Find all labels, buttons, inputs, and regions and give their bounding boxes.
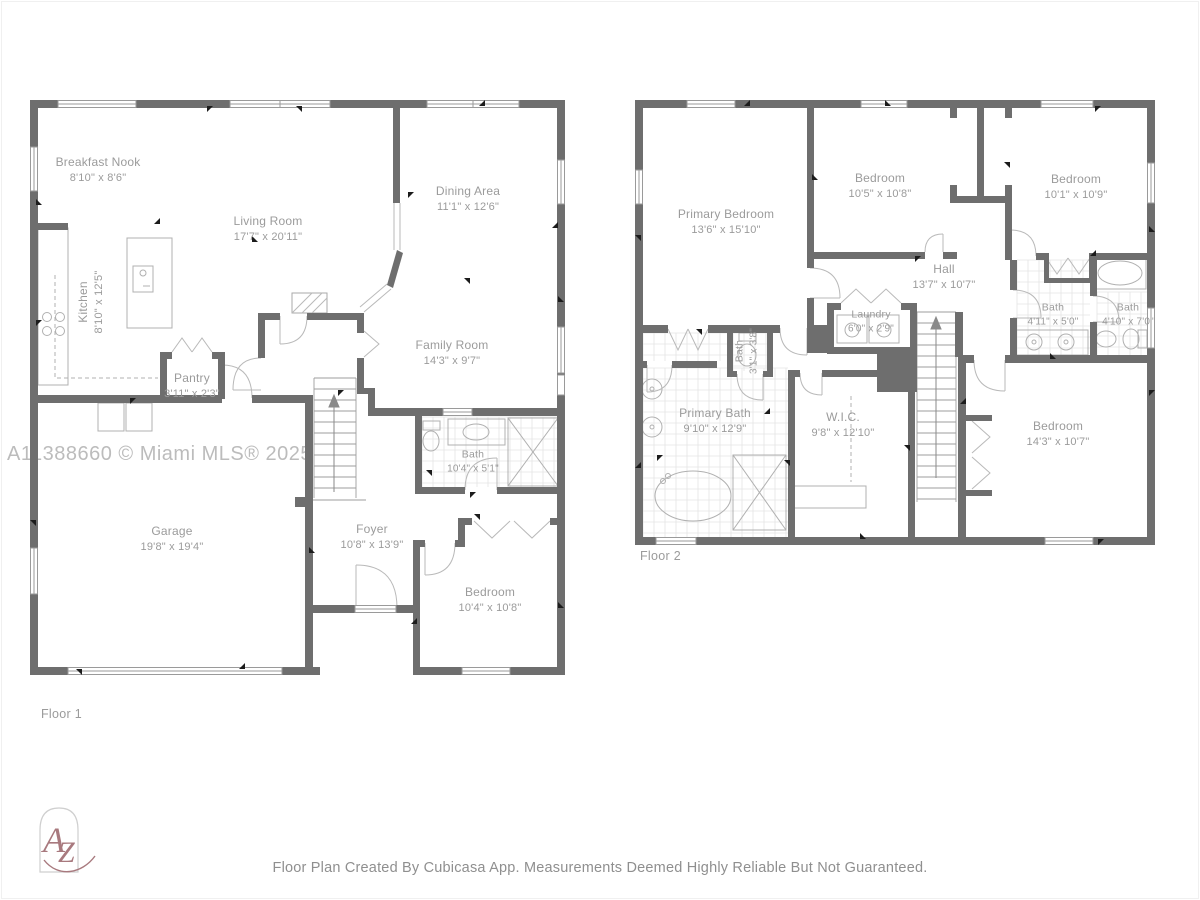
room-label-bedroom2-f2: Bedroom10'5" x 10'8" [849,171,912,201]
garage-storage-icon [126,403,152,431]
room-label-pantry: Pantry3'11" x 2'3" [164,371,220,401]
room-label-garage: Garage19'8" x 19'4" [141,524,204,554]
sink-icon [1096,331,1116,347]
bath-vanity-icon [448,419,505,445]
bathtub-icon [1095,257,1146,289]
room-label-bath-f1: Bath10'4" x 5'1" [447,449,499,476]
stove-icon [43,313,65,336]
counter-overhang-line [55,275,158,378]
floor-plan-page: A11388660 © Miami MLS® 2025 [0,0,1200,900]
island-sink-icon [133,266,153,292]
room-label-foyer: Foyer10'8" x 13'9" [341,522,404,552]
wic-dresser-icon [794,486,866,508]
double-vanity-icon [1014,330,1088,355]
room-label-living-room: Living Room17'7" x 20'11" [234,214,303,244]
kitchen-counter-icon [38,228,68,385]
room-label-bedroom4-f2: Bedroom14'3" x 10'7" [1027,419,1090,449]
room-label-bedroom-f1: Bedroom10'4" x 10'8" [459,585,522,615]
room-label-bedroom3-f2: Bedroom10'1" x 10'9" [1045,172,1108,202]
stairs [311,312,956,502]
footer-disclaimer: Floor Plan Created By Cubicasa App. Meas… [0,860,1200,876]
kitchen-island-icon [127,238,172,328]
room-label-bath-hall-2: Bath4'10" x 7'0" [1102,302,1154,329]
pedestal-sink-icon [642,379,662,437]
floor-plan-drawing: A Z [0,0,1200,900]
room-label-laundry: Laundry6'0" x 2'9" [848,309,894,336]
toilet-icon [423,421,440,451]
room-label-hall: Hall13'7" x 10'7" [913,262,976,292]
room-label-kitchen: Kitchen8'10" x 12'5" [76,271,106,334]
shower-icon [733,455,786,530]
room-label-bath-wc: Bath3'1" x 3'8" [734,328,761,374]
toilet-icon [1123,329,1147,349]
room-label-bath-hall-1: Bath4'11" x 5'0" [1028,302,1079,329]
room-label-breakfast-nook: Breakfast Nook8'10" x 8'6" [56,155,141,185]
room-label-primary-bath: Primary Bath9'10" x 12'9" [679,406,751,436]
room-label-wic: W.I.C.9'8" x 12'10" [812,410,875,440]
room-label-dining-area: Dining Area11'1" x 12'6" [436,184,500,214]
floor1-tag: Floor 1 [41,707,82,721]
room-label-primary-bedroom: Primary Bedroom13'6" x 15'10" [678,207,774,237]
garage-storage-icon [98,403,124,431]
floor2-tag: Floor 2 [640,549,681,563]
room-label-family-room: Family Room14'3" x 9'7" [416,338,489,368]
